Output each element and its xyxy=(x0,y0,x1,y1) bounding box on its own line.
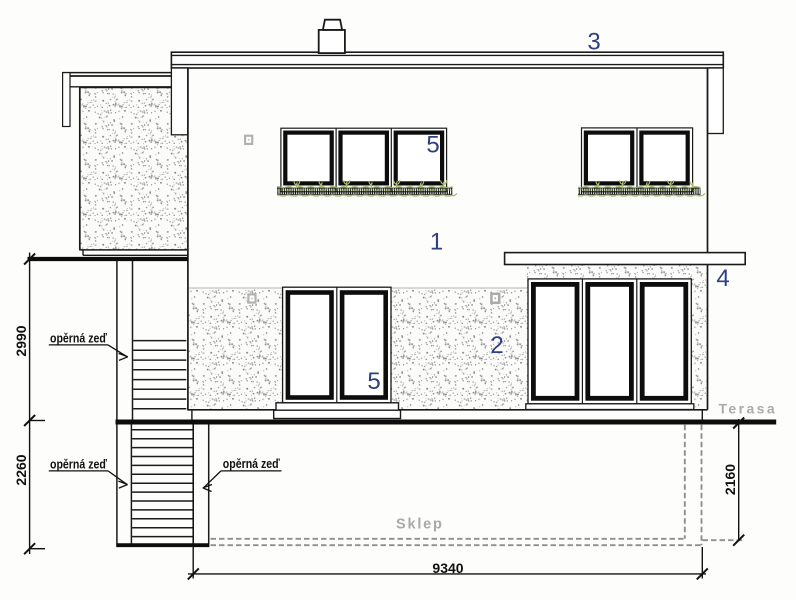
svg-text:3: 3 xyxy=(587,29,600,56)
svg-text:opěrná zeď: opěrná zeď xyxy=(50,331,107,345)
svg-text:2260: 2260 xyxy=(13,454,29,485)
svg-text:5: 5 xyxy=(426,132,439,159)
svg-text:2: 2 xyxy=(490,332,503,359)
svg-text:1: 1 xyxy=(430,229,443,256)
svg-text:2990: 2990 xyxy=(13,325,29,356)
svg-text:Sklep: Sklep xyxy=(396,517,444,533)
svg-text:4: 4 xyxy=(716,265,729,292)
svg-text:9340: 9340 xyxy=(432,560,463,576)
svg-text:Terasa: Terasa xyxy=(719,401,778,417)
svg-text:opěrná zeď: opěrná zeď xyxy=(50,457,107,471)
svg-text:opěrná zeď: opěrná zeď xyxy=(223,457,280,471)
svg-text:2160: 2160 xyxy=(722,464,738,495)
svg-text:5: 5 xyxy=(367,368,380,395)
